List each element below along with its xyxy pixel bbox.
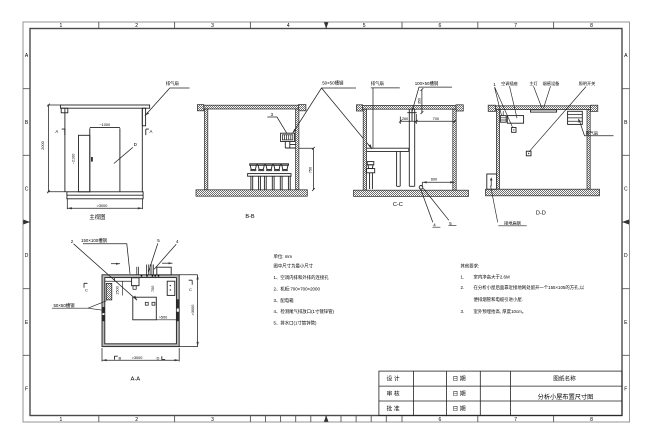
svg-text:7: 7	[514, 23, 517, 29]
svg-text:主视图: 主视图	[89, 213, 105, 221]
svg-text:D: D	[157, 355, 160, 360]
svg-text:150×100槽钢: 150×100槽钢	[81, 237, 108, 244]
svg-text:批 准: 批 准	[387, 404, 400, 412]
svg-text:6: 6	[439, 23, 442, 29]
svg-text:3.: 3.	[461, 309, 465, 314]
svg-text:>3000: >3000	[132, 356, 143, 360]
svg-text:烟感设备: 烟感设备	[543, 80, 561, 87]
svg-text:排气扇: 排气扇	[371, 80, 384, 87]
svg-text:750: 750	[309, 167, 313, 173]
svg-text:5: 5	[363, 23, 366, 29]
svg-text:~2100: ~2100	[71, 154, 75, 165]
svg-text:3: 3	[211, 417, 214, 423]
svg-text:>3000: >3000	[191, 305, 195, 316]
svg-text:350: 350	[417, 98, 421, 104]
svg-text:1.: 1.	[461, 274, 465, 279]
svg-text:3: 3	[211, 23, 214, 29]
svg-text:2: 2	[71, 239, 74, 244]
svg-text:C: C	[189, 287, 192, 292]
svg-text:8: 8	[590, 23, 593, 29]
svg-text:>500: >500	[159, 315, 168, 319]
svg-text:室内净高大于2.6M: 室内净高大于2.6M	[474, 273, 510, 280]
svg-text:B: B	[624, 120, 628, 126]
svg-text:单位: mm: 单位: mm	[274, 253, 293, 260]
svg-text:空调插座: 空调插座	[501, 80, 518, 87]
svg-text:E: E	[624, 320, 628, 326]
svg-text:700: 700	[151, 286, 155, 292]
svg-text:照明开关: 照明开关	[579, 80, 596, 87]
svg-text:2: 2	[135, 23, 138, 29]
svg-text:260: 260	[402, 117, 408, 121]
svg-text:B: B	[25, 120, 29, 126]
svg-text:A-A: A-A	[130, 377, 140, 383]
svg-text:设 计: 设 计	[387, 375, 400, 383]
svg-text:1、空调内排和外排的连接孔: 1、空调内排和外排的连接孔	[274, 274, 330, 281]
svg-text:2、机柜:700×700×2000: 2、机柜:700×700×2000	[274, 285, 321, 292]
svg-text:接地扁钢: 接地扁钢	[504, 219, 521, 226]
svg-text:4: 4	[176, 239, 179, 244]
svg-text:100×50槽钢: 100×50槽钢	[415, 80, 439, 87]
svg-text:A: A	[624, 53, 628, 59]
svg-text:700: 700	[433, 117, 439, 121]
svg-text:5: 5	[157, 238, 160, 243]
svg-text:A: A	[25, 53, 29, 59]
svg-text:2: 2	[135, 417, 138, 423]
svg-text:4、检测尾气排放口(1寸镀锌管): 4、检测尾气排放口(1寸镀锌管)	[274, 308, 335, 315]
svg-text:1: 1	[60, 23, 63, 29]
svg-text:日 期: 日 期	[453, 391, 466, 398]
svg-text:图纸名称: 图纸名称	[553, 375, 576, 383]
svg-text:C: C	[25, 187, 29, 193]
svg-text:C-C: C-C	[393, 202, 403, 208]
svg-text:便排烟管和电缆引进小屋.: 便排烟管和电缆引进小屋.	[474, 296, 524, 303]
svg-text:5: 5	[449, 221, 452, 226]
svg-text:3、配电箱: 3、配电箱	[274, 297, 295, 304]
svg-text:600: 600	[431, 178, 437, 182]
svg-text:D-D: D-D	[536, 210, 546, 216]
svg-text:A: A	[55, 129, 58, 134]
svg-text:B-B: B-B	[245, 214, 255, 220]
svg-text:图中尺寸为最小尺寸: 图中尺寸为最小尺寸	[274, 263, 314, 270]
svg-text:F: F	[624, 387, 627, 393]
svg-text:3: 3	[271, 112, 274, 117]
svg-text:1500: 1500	[115, 286, 119, 294]
svg-text:B: B	[119, 355, 122, 360]
svg-text:50×50槽钢: 50×50槽钢	[53, 302, 75, 309]
svg-text:在分析小屋后面靠近接地网处留开一个155×105的方孔,以: 在分析小屋后面靠近接地网处留开一个155×105的方孔,以	[474, 284, 585, 291]
svg-text:D: D	[134, 142, 138, 147]
svg-text:A: A	[150, 129, 153, 134]
svg-text:主灯: 主灯	[529, 80, 538, 87]
svg-text:F: F	[25, 387, 28, 393]
svg-text:日 期: 日 期	[453, 376, 466, 383]
svg-text:2000: 2000	[41, 141, 45, 149]
svg-text:排气扇: 排气扇	[166, 80, 179, 87]
svg-text:~1000: ~1000	[99, 123, 110, 127]
svg-text:室外预埋抬高, 厚度10cm。: 室外预埋抬高, 厚度10cm。	[474, 308, 527, 315]
svg-text:分析小屋布置尺寸图: 分析小屋布置尺寸图	[538, 393, 594, 401]
svg-text:>3000: >3000	[97, 204, 108, 208]
svg-text:审 核: 审 核	[387, 390, 400, 398]
svg-text:D: D	[624, 253, 628, 259]
svg-text:其他要求:: 其他要求:	[461, 263, 480, 270]
svg-text:2.: 2.	[461, 285, 465, 290]
svg-text:6: 6	[439, 417, 442, 423]
svg-text:50×50槽钢: 50×50槽钢	[322, 79, 344, 86]
svg-text:5、排水口(1寸镀锌管): 5、排水口(1寸镀锌管)	[274, 320, 317, 327]
svg-text:D: D	[25, 253, 29, 259]
svg-text:1: 1	[493, 82, 496, 87]
svg-text:4: 4	[287, 23, 290, 29]
svg-text:1: 1	[60, 417, 63, 423]
svg-text:4: 4	[433, 222, 436, 227]
svg-text:E: E	[25, 320, 29, 326]
svg-text:7: 7	[514, 417, 517, 423]
svg-text:C: C	[85, 288, 88, 293]
svg-text:C: C	[624, 187, 628, 193]
svg-text:日 期: 日 期	[453, 405, 466, 412]
svg-text:8: 8	[590, 417, 593, 423]
